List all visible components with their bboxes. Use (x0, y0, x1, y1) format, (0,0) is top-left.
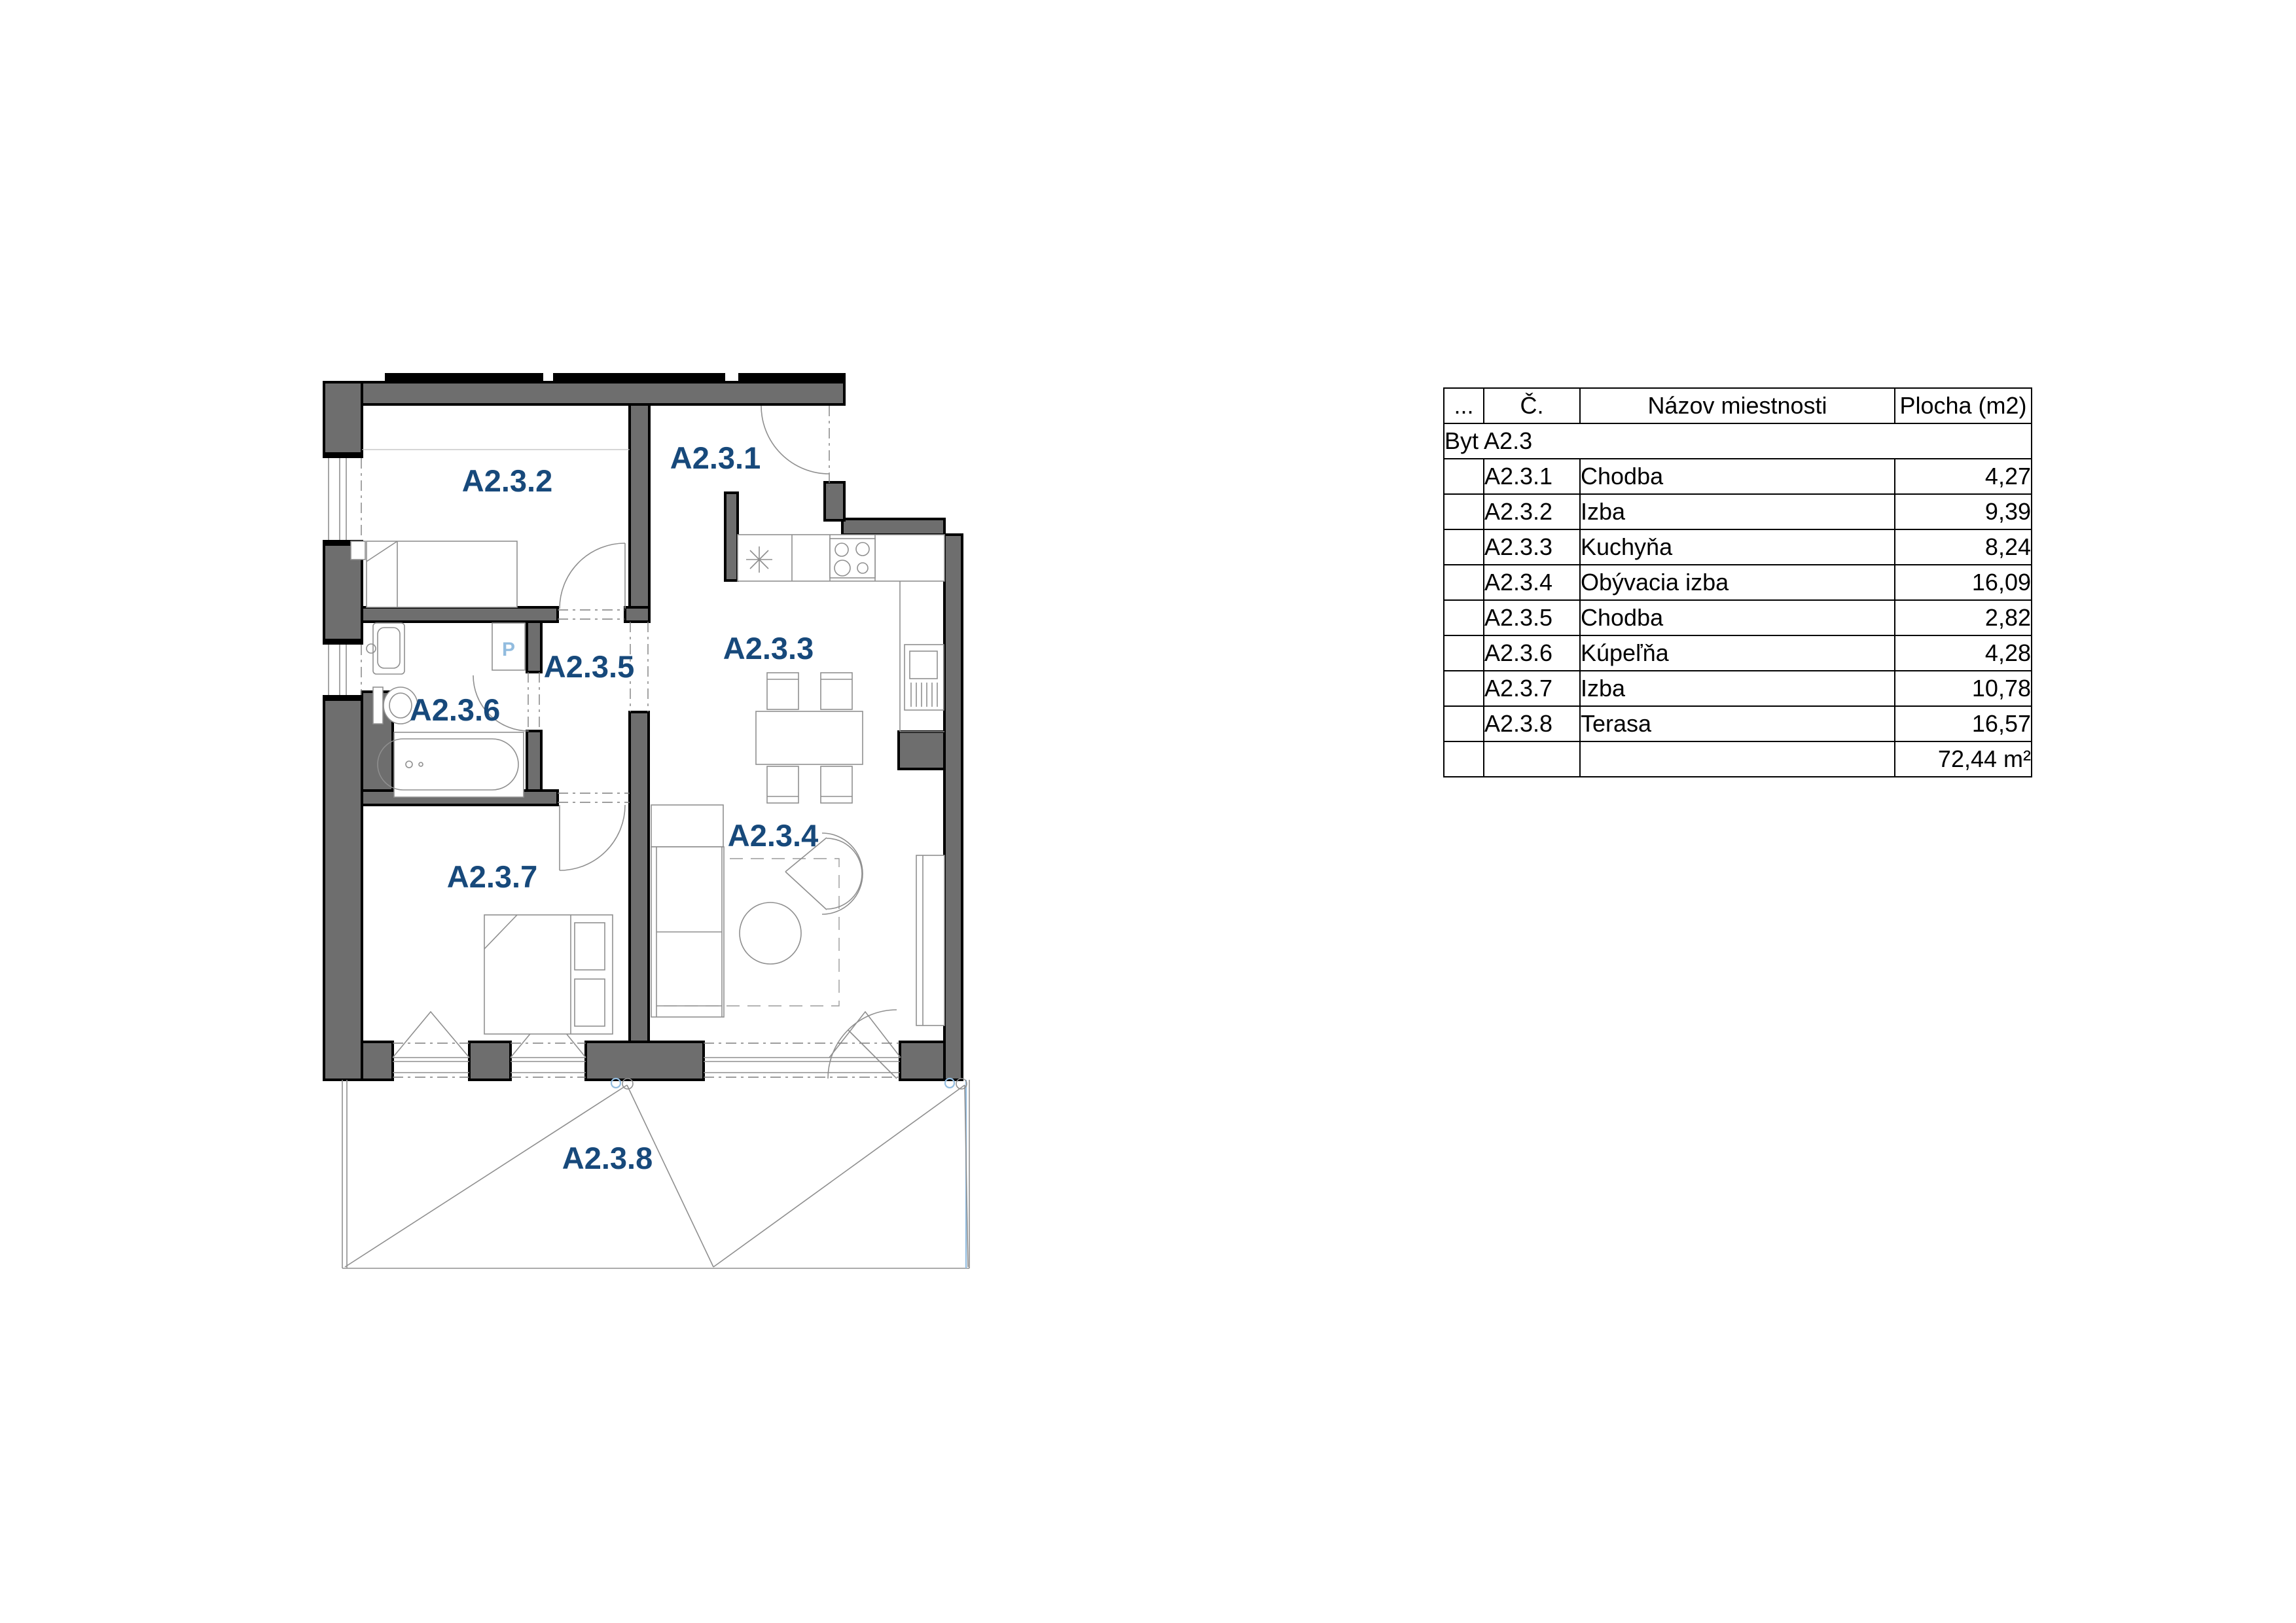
table-total-row: 72,44 m² (1444, 741, 2032, 777)
cell-room-name: Kuchyňa (1580, 529, 1895, 565)
cell-room-area: 2,82 (1895, 600, 2032, 635)
room-label-a2-3-4: A2.3.4 (728, 818, 818, 853)
cell-blank (1444, 459, 1484, 494)
cell-blank (1444, 600, 1484, 635)
table-header-row: ... Č. Názov miestnosti Plocha (m2) (1444, 388, 2032, 423)
sofa-icon (651, 847, 724, 1017)
room-label-a2-3-3: A2.3.3 (723, 631, 814, 666)
cell-room-name: Obývacia izba (1580, 565, 1895, 600)
table-group-row: Byt A2.3 (1444, 423, 2032, 459)
terrace-outline (342, 1080, 969, 1268)
table-row: A2.3.6 Kúpeľňa 4,28 (1444, 635, 2032, 671)
cell-blank (1444, 671, 1484, 706)
walls (324, 382, 962, 1080)
cell-room-name: Terasa (1580, 706, 1895, 741)
cell-blank (1444, 494, 1484, 529)
cell-room-area: 16,57 (1895, 706, 2032, 741)
cell-room-id: A2.3.2 (1484, 494, 1580, 529)
room-label-a2-3-1: A2.3.1 (670, 440, 761, 475)
sideboard-icon (651, 805, 723, 847)
page: A2.3.1 A2.3.2 A2.3.3 A2.3.4 A2.3.5 A2.3.… (0, 0, 2296, 1623)
header-cell-dots: ... (1444, 388, 1484, 423)
cell-room-area: 10,78 (1895, 671, 2032, 706)
washing-machine-label: P (502, 639, 515, 660)
cell-total-area: 72,44 m² (1895, 741, 2032, 777)
cell-blank (1444, 565, 1484, 600)
cell-room-area: 4,28 (1895, 635, 2032, 671)
cell-room-area: 9,39 (1895, 494, 2032, 529)
table-row: A2.3.2 Izba 9,39 (1444, 494, 2032, 529)
header-cell-name: Názov miestnosti (1580, 388, 1895, 423)
table-row: A2.3.7 Izba 10,78 (1444, 671, 2032, 706)
cell-blank (1444, 529, 1484, 565)
radiator-icon (905, 645, 944, 710)
room-area-table: ... Č. Názov miestnosti Plocha (m2) Byt … (1443, 387, 2032, 777)
cell-room-area: 4,27 (1895, 459, 2032, 494)
door-arc-bedroom-a232 (560, 543, 625, 609)
room-label-a2-3-5: A2.3.5 (544, 649, 634, 684)
room-label-a2-3-6: A2.3.6 (410, 692, 500, 727)
room-label-a2-3-8: A2.3.8 (562, 1141, 653, 1175)
cell-room-name: Chodba (1580, 459, 1895, 494)
cell-room-area: 16,09 (1895, 565, 2032, 600)
cell-blank (1484, 741, 1580, 777)
room-label-a2-3-2: A2.3.2 (462, 463, 552, 498)
cell-room-id: A2.3.4 (1484, 565, 1580, 600)
group-label-cell: Byt A2.3 (1444, 423, 2032, 459)
window-left-bathroom (329, 645, 346, 695)
door-arc-terrace (828, 1010, 897, 1079)
dining-table-icon (756, 673, 863, 803)
coffee-table-icon (740, 902, 801, 964)
table-row: A2.3.3 Kuchyňa 8,24 (1444, 529, 2032, 565)
stove-icon (830, 539, 875, 578)
double-bed-icon (484, 915, 613, 1034)
cell-room-id: A2.3.8 (1484, 706, 1580, 741)
cell-blank (1444, 635, 1484, 671)
cell-room-id: A2.3.5 (1484, 600, 1580, 635)
header-cell-area: Plocha (m2) (1895, 388, 2032, 423)
cell-blank (1444, 741, 1484, 777)
cell-room-id: A2.3.7 (1484, 671, 1580, 706)
table-row: A2.3.4 Obývacia izba 16,09 (1444, 565, 2032, 600)
single-bed-icon (351, 541, 517, 607)
terrace-diagonals (345, 1079, 968, 1267)
table-row: A2.3.5 Chodba 2,82 (1444, 600, 2032, 635)
cell-room-id: A2.3.1 (1484, 459, 1580, 494)
table-row: A2.3.8 Terasa 16,57 (1444, 706, 2032, 741)
floor-plan: A2.3.1 A2.3.2 A2.3.3 A2.3.4 A2.3.5 A2.3.… (288, 353, 1014, 1289)
cell-room-id: A2.3.3 (1484, 529, 1580, 565)
cell-room-id: A2.3.6 (1484, 635, 1580, 671)
window-left-bedroom (329, 458, 346, 540)
room-label-a2-3-7: A2.3.7 (447, 859, 537, 894)
cell-blank (1580, 741, 1895, 777)
cell-room-area: 8,24 (1895, 529, 2032, 565)
kitchen-sink-icon (746, 546, 772, 573)
cell-room-name: Chodba (1580, 600, 1895, 635)
cell-room-name: Kúpeľňa (1580, 635, 1895, 671)
cell-blank (1444, 706, 1484, 741)
tv-bench-icon (916, 855, 944, 1026)
door-arc-entrance (761, 406, 829, 474)
bathroom-sink-icon (367, 623, 404, 674)
cell-room-name: Izba (1580, 671, 1895, 706)
bathtub-icon (378, 732, 524, 797)
cell-room-name: Izba (1580, 494, 1895, 529)
header-cell-number: Č. (1484, 388, 1580, 423)
door-arc-bedroom-a237 (560, 805, 625, 870)
table-row: A2.3.1 Chodba 4,27 (1444, 459, 2032, 494)
